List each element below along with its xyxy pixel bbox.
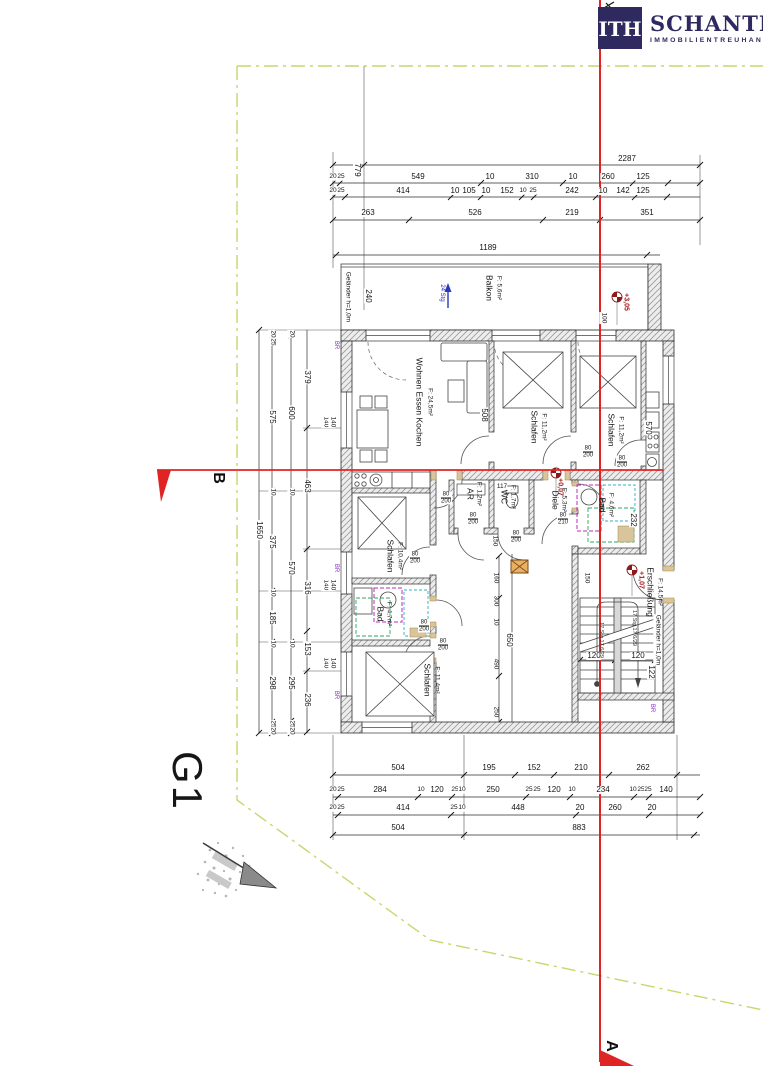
logo-text: SCHANTL IMMOBILIENTREUHAND bbox=[650, 7, 763, 44]
electrical-box bbox=[511, 560, 528, 573]
stair-direction-arrow bbox=[445, 283, 452, 308]
logo-name: SCHANTL bbox=[650, 13, 763, 34]
site-arrow bbox=[197, 842, 276, 897]
logo: ITH SCHANTL IMMOBILIENTREUHAND bbox=[598, 7, 763, 49]
plan-drawing bbox=[0, 0, 763, 1080]
logo-subtitle: IMMOBILIENTREUHAND bbox=[650, 37, 763, 44]
dimension-lines bbox=[259, 165, 700, 835]
property-boundary bbox=[237, 66, 763, 1010]
staircase bbox=[580, 598, 655, 693]
logo-mark-icon: ITH bbox=[598, 7, 642, 49]
dimension-ticks bbox=[256, 162, 703, 838]
floor-plan-sheet: 2287779202554910310102601252025414101051… bbox=[0, 0, 763, 1080]
